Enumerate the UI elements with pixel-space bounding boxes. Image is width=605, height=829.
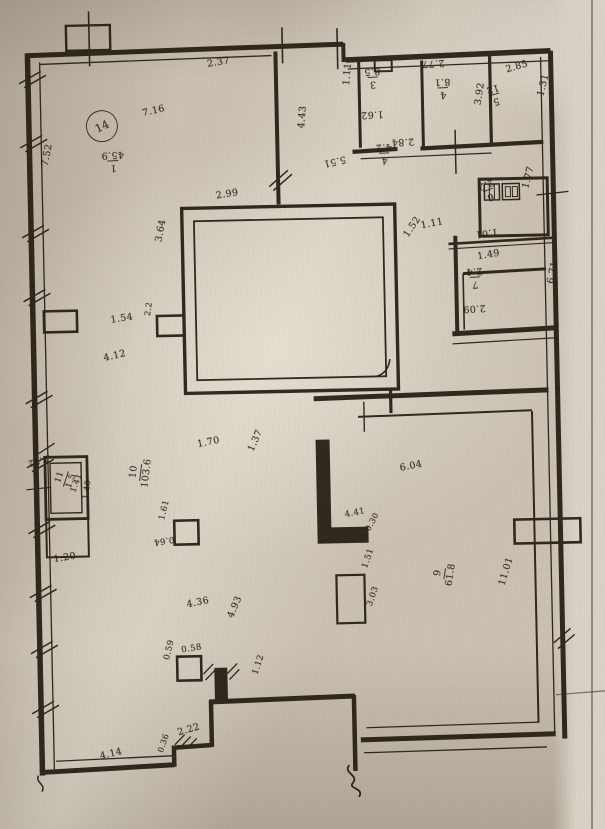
fixture-rect: [336, 575, 365, 624]
inner-wall-lines: [40, 49, 605, 769]
dimension-ticks: [66, 6, 338, 75]
dimension-label: 1.01: [474, 226, 498, 239]
room1-right-wall: [266, 51, 292, 204]
dimension-label: 1.11: [342, 62, 354, 86]
dimension-label: 0.64: [153, 534, 175, 546]
room-number-area-label: 44.2: [375, 141, 393, 165]
room-number-area-label: 145.9: [101, 149, 125, 173]
room-number-area-label: 10103.6: [127, 457, 153, 489]
door-swing: [376, 359, 390, 376]
dimension-label: 4.43: [297, 105, 309, 129]
dimension-label: 2.77: [421, 57, 444, 68]
wall-pier: [214, 668, 228, 701]
room-number-area-label: 48.1: [434, 76, 452, 100]
floor-plan: 14 2.377.16145.97.524.431.1138.51.622.77…: [0, 0, 605, 829]
exterior-stoop: [514, 518, 580, 543]
floor-plan-photo: 14 2.377.16145.97.524.431.1138.51.622.77…: [0, 0, 605, 829]
l-partition: [316, 439, 369, 544]
dimension-label: 2.84: [391, 136, 414, 147]
room-number-area-label: 961.8: [432, 561, 458, 587]
apartment-number: 14: [93, 117, 111, 135]
room-number-area-label: 38.5: [364, 65, 382, 89]
room-number-area-label: 72.4: [466, 265, 484, 289]
column: [174, 520, 198, 544]
chimney-block: [66, 25, 111, 51]
column: [177, 656, 201, 680]
dimension-label: 2.09: [463, 302, 486, 313]
room9: [314, 389, 585, 726]
dimension-label: 1.62: [361, 108, 384, 119]
central-block: [182, 204, 399, 393]
